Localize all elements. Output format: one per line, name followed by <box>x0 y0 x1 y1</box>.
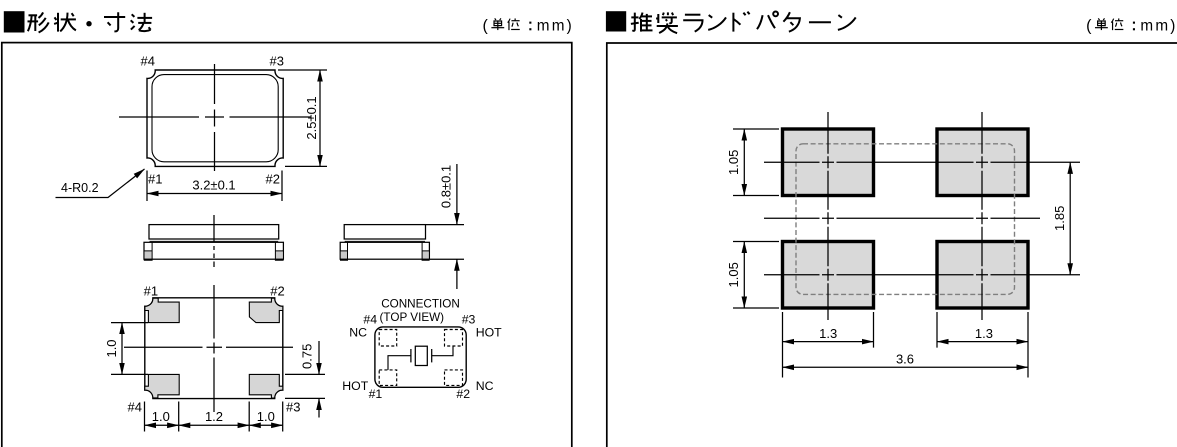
svg-text:#1: #1 <box>148 172 162 187</box>
svg-text:#1: #1 <box>144 284 158 299</box>
svg-text:1.0: 1.0 <box>104 339 119 357</box>
svg-text:#1: #1 <box>369 387 383 401</box>
svg-text:#3: #3 <box>462 312 476 326</box>
svg-text:1.0: 1.0 <box>257 409 275 424</box>
svg-text:3.2±0.1: 3.2±0.1 <box>192 177 235 192</box>
svg-text:4-R0.2: 4-R0.2 <box>61 181 99 195</box>
svg-text:(TOP VIEW): (TOP VIEW) <box>380 311 445 324</box>
svg-text:1.3: 1.3 <box>819 326 837 341</box>
svg-text:1.05: 1.05 <box>726 150 741 175</box>
svg-text:3.6: 3.6 <box>896 352 914 367</box>
svg-text:#2: #2 <box>270 284 284 299</box>
svg-text:(: ( <box>483 18 489 35</box>
svg-text:1.2: 1.2 <box>205 409 223 424</box>
svg-text:1.85: 1.85 <box>1052 206 1067 231</box>
svg-text:#3: #3 <box>270 54 284 69</box>
svg-text:HOT: HOT <box>342 379 368 393</box>
svg-text:HOT: HOT <box>476 326 502 340</box>
svg-text:1.05: 1.05 <box>726 262 741 287</box>
svg-text:1.3: 1.3 <box>975 326 993 341</box>
svg-text:#4: #4 <box>141 54 155 69</box>
svg-text:CONNECTION: CONNECTION <box>381 297 460 310</box>
svg-text:#4: #4 <box>363 312 377 326</box>
svg-text:mm): mm) <box>537 18 574 35</box>
svg-text:NC: NC <box>349 326 367 340</box>
svg-text:#4: #4 <box>128 399 142 414</box>
svg-text:1.0: 1.0 <box>152 409 170 424</box>
svg-text:2.5±0.1: 2.5±0.1 <box>304 96 319 139</box>
svg-text:0.75: 0.75 <box>300 344 315 369</box>
svg-text:0.8±0.1: 0.8±0.1 <box>439 165 454 208</box>
svg-text:#2: #2 <box>266 172 280 187</box>
svg-text:NC: NC <box>476 379 494 393</box>
svg-text:#2: #2 <box>456 387 470 401</box>
svg-text:#3: #3 <box>286 400 300 415</box>
